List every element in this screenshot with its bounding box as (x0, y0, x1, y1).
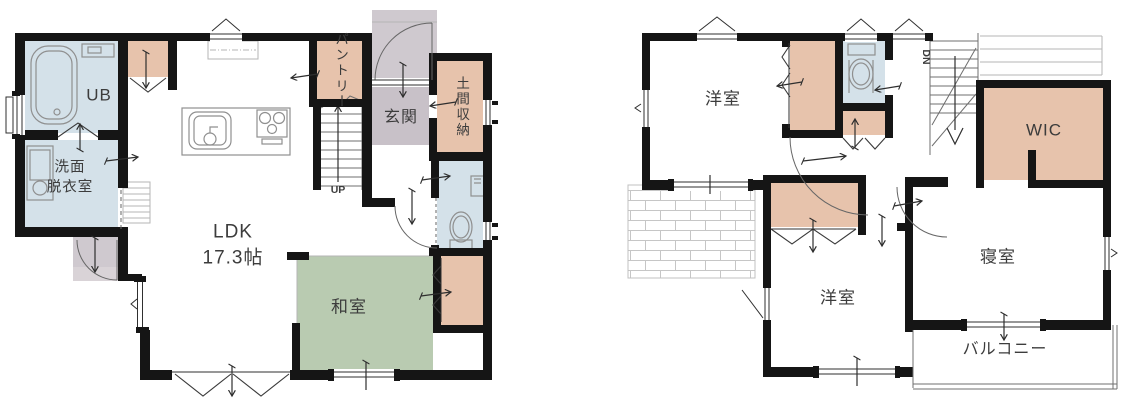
label-japanese-room: 和室 (331, 297, 367, 320)
bedroom-window-right (1102, 237, 1117, 270)
stove-icon (257, 110, 287, 144)
ldk-bay-window (131, 276, 149, 333)
label-wic: WIC (1026, 120, 1062, 143)
label-main-bedroom: 寝室 (980, 247, 1016, 270)
western-room-lower-window-left (742, 288, 772, 320)
label-western-room-lower: 洋室 (820, 288, 856, 311)
closet-western-room-lower-floor (771, 183, 858, 227)
stair-hall-window (893, 19, 925, 42)
label-ldk-line1: LDK (203, 219, 264, 245)
bath-window (6, 91, 25, 139)
toilet-2f-window (845, 19, 877, 42)
back-porch-step (73, 267, 122, 281)
entrance-porch-floor (372, 10, 437, 78)
hall-door-arc (395, 206, 437, 248)
label-stairs-up: UP (331, 183, 346, 197)
western-room-upper-window-left (635, 90, 651, 127)
closet-ldk-north-floor (128, 41, 168, 77)
label-pantry: パントリー (331, 32, 349, 110)
western-room-upper-window-top (697, 17, 737, 42)
label-balcony: バルコニー (963, 339, 1048, 361)
north-closet-folding-door (130, 78, 166, 92)
label-washroom: 洗面 脱衣室 (47, 158, 94, 197)
floor2-plan (628, 17, 1117, 389)
closet-western-room-upper-floor (790, 41, 835, 130)
label-washroom-line1: 洗面 (47, 158, 94, 178)
roof-brick-area (628, 185, 755, 278)
toilet-1f-window (484, 222, 498, 240)
floor-plan-linework (0, 0, 1126, 406)
stairs-2f (930, 33, 978, 155)
ldk-folding-window (172, 369, 290, 396)
label-ldk: LDK 17.3帖 (203, 219, 264, 270)
closet-japanese-room-floor (440, 256, 483, 325)
label-western-room-upper: 洋室 (705, 89, 741, 112)
roof-lines-ne (980, 36, 1102, 75)
label-unit-bath: UB (86, 85, 112, 108)
hall-closet-folding-door (843, 138, 885, 149)
label-entrance: 玄関 (384, 107, 418, 129)
room-toilet-1f-floor (437, 160, 483, 250)
entrance-storage-window (484, 100, 498, 125)
floor-plan-image: UB 洗面 脱衣室 LDK 17.3帖 パントリー 玄関 土間収納 和室 UP … (0, 0, 1126, 406)
kitchen-window (210, 19, 242, 42)
label-ldk-line2: 17.3帖 (203, 245, 264, 271)
closet-hall-2f-floor (843, 111, 885, 135)
back-porch-floor (73, 237, 122, 267)
label-stairs-dn: DN (919, 49, 933, 64)
linen-shelf-icon (123, 182, 150, 223)
label-entrance-storage: 土間収納 (452, 76, 470, 138)
stairs-1f (321, 96, 362, 190)
kitchen-cabinet-icon (208, 41, 258, 59)
label-washroom-line2: 脱衣室 (47, 178, 94, 198)
floor1-plan (6, 10, 498, 396)
japanese-room-window (328, 369, 400, 381)
